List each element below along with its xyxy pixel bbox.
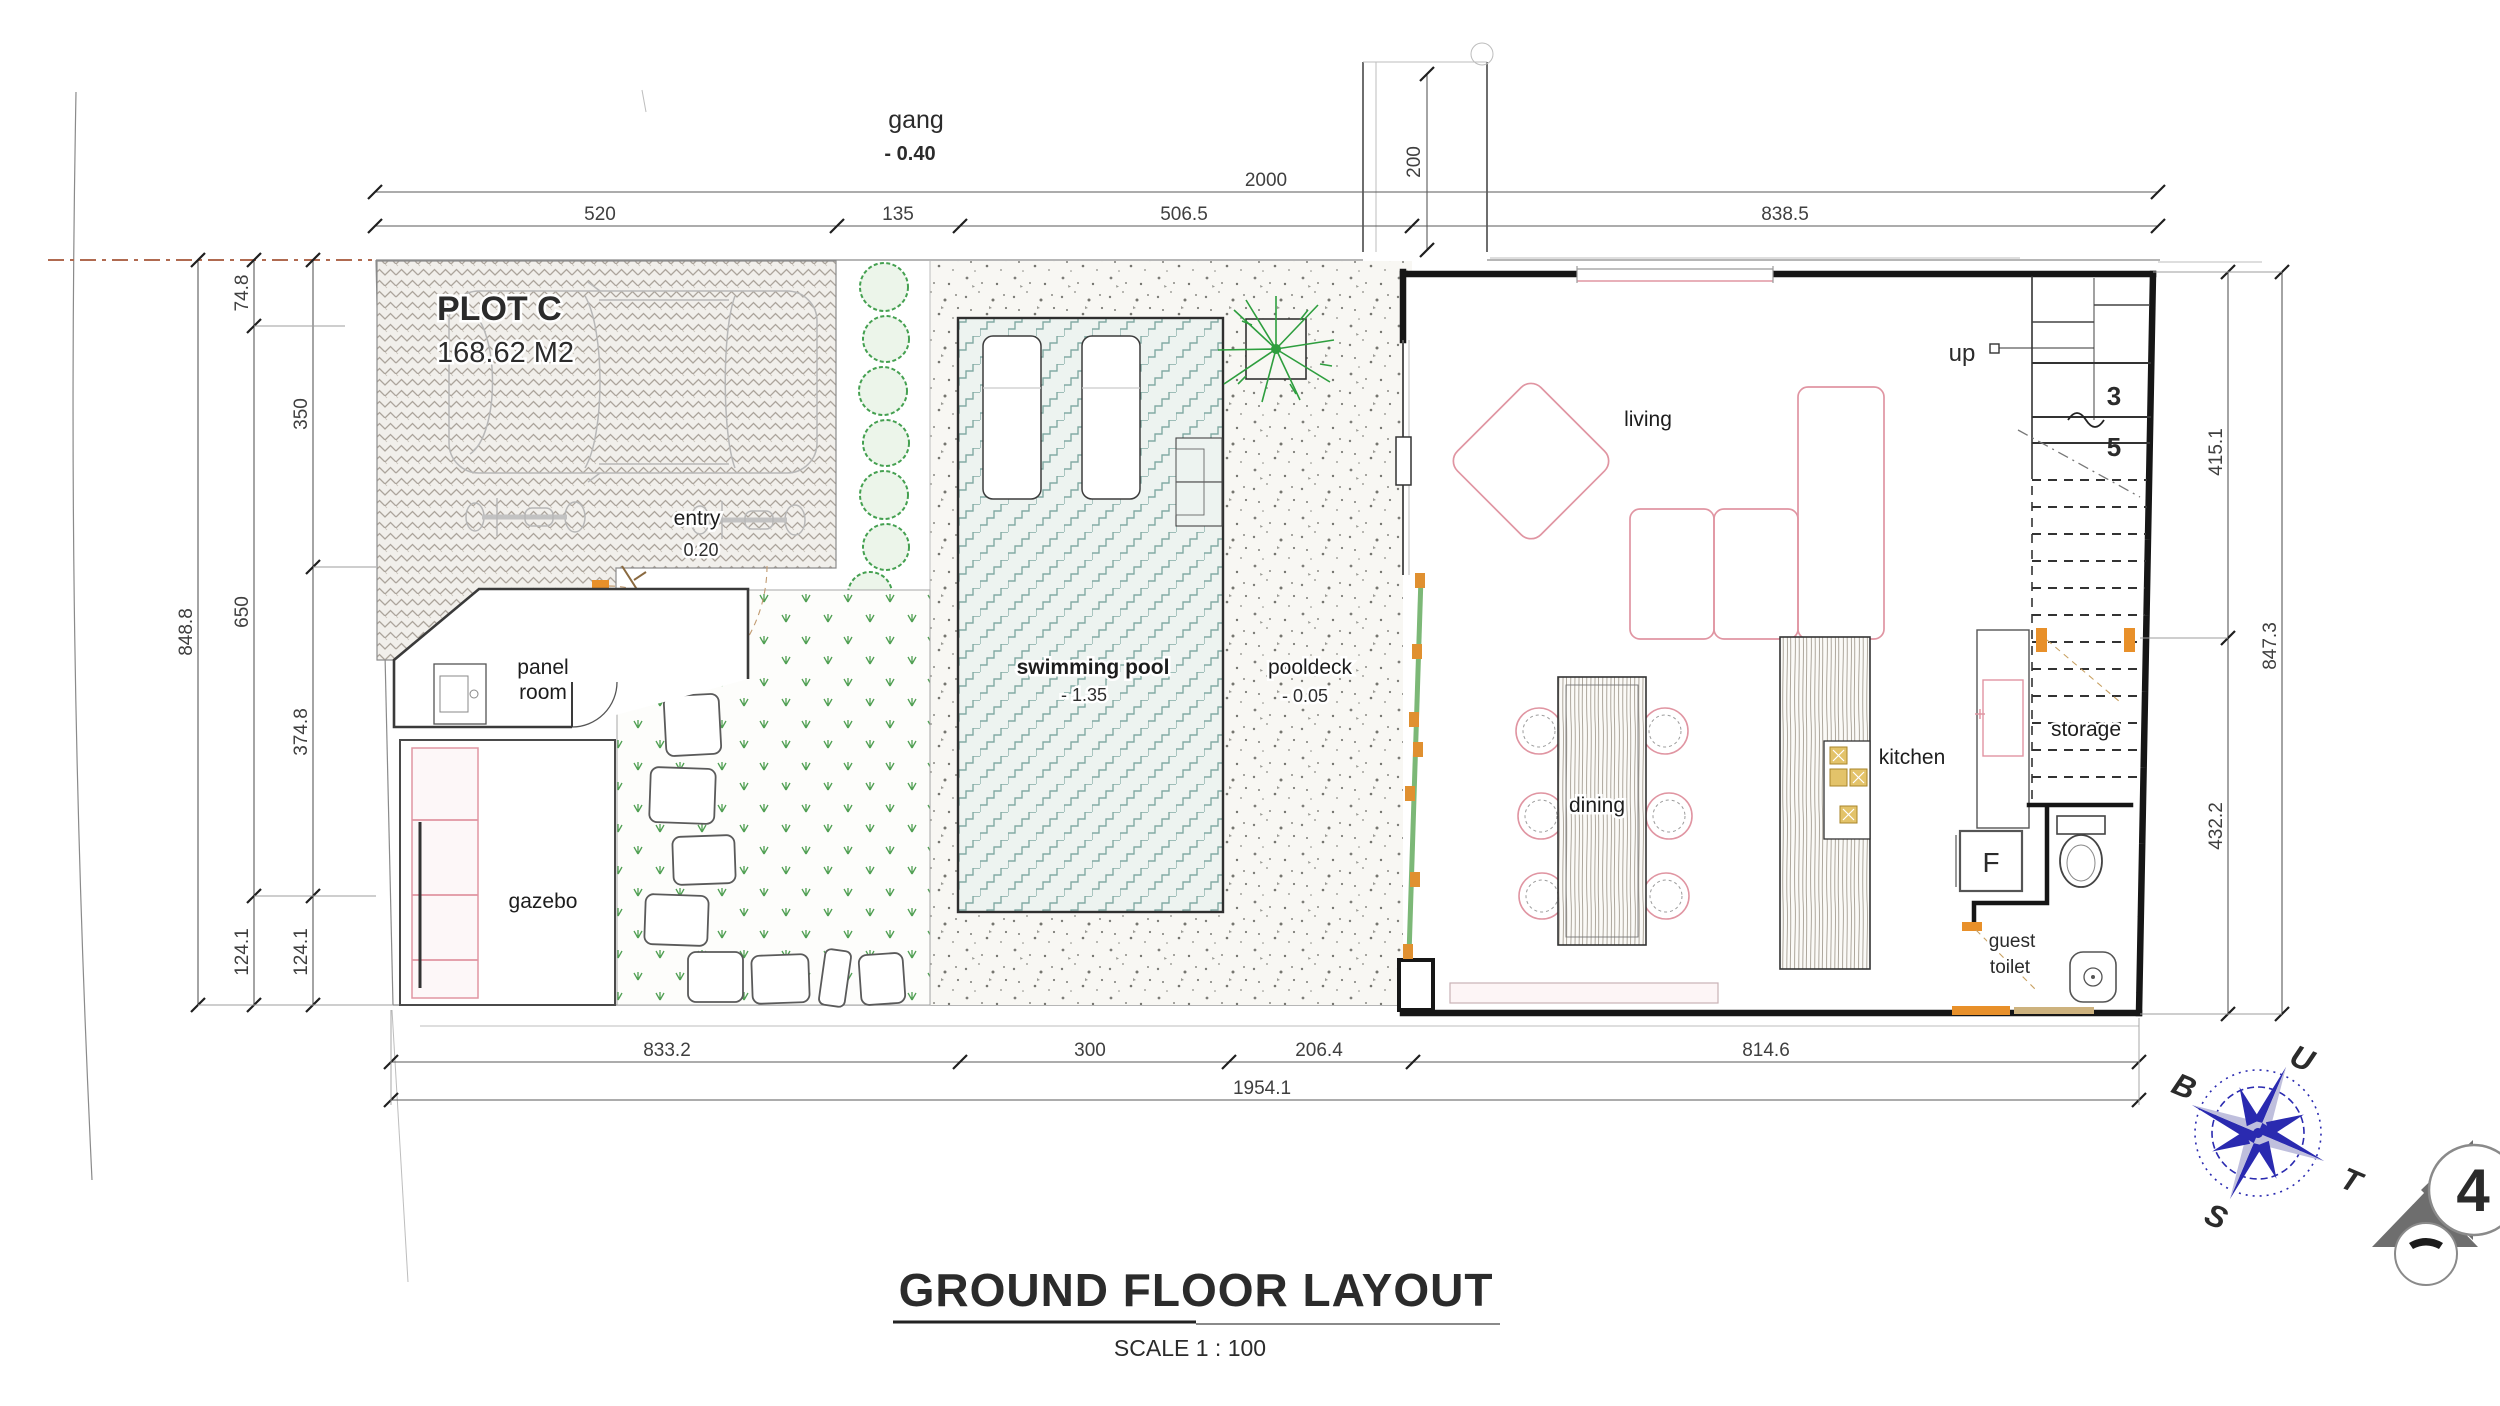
dim-top-4: 838.5	[1761, 204, 1809, 225]
dim-left-b2: 374.8	[291, 708, 312, 756]
living-label: living	[1624, 408, 1672, 431]
dim-bottom-4: 814.6	[1742, 1040, 1790, 1061]
door-sill	[1952, 1006, 2010, 1015]
compass-south: S	[2200, 1196, 2233, 1236]
dim-top-2: 135	[882, 204, 914, 225]
pool-steps-icon	[1176, 438, 1222, 526]
stairs-up-label: up	[1949, 340, 1976, 367]
dimension-right: 415.1 432.2 847.3	[2140, 265, 2289, 1021]
drawing-scale: SCALE 1 : 100	[1114, 1335, 1266, 1361]
compass-west: B	[2167, 1066, 2201, 1107]
alley-level: - 0.40	[884, 143, 935, 165]
pool-lounger-icon	[983, 336, 1041, 499]
compass-north: U	[2285, 1038, 2321, 1080]
dim-top-1: 520	[584, 204, 616, 225]
stove-icon	[1824, 741, 1870, 839]
panel-room-label-1: panel	[517, 656, 568, 679]
pooldeck-label: pooldeck	[1268, 656, 1353, 679]
tread-number-3: 3	[2107, 381, 2121, 411]
pooldeck-level: - 0.05	[1282, 686, 1328, 706]
title-block: GROUND FLOOR LAYOUT SCALE 1 : 100	[893, 1264, 1500, 1361]
dim-right-2: 432.2	[2206, 802, 2227, 850]
dimension-bottom: 833.2 300 206.4 814.6 1954.1	[384, 1010, 2146, 1107]
entry-label: entry	[674, 507, 721, 530]
alley-label: gang	[888, 106, 944, 134]
plot-name: PLOT C	[437, 290, 562, 328]
dim-left-a2: 650	[232, 596, 253, 628]
fridge-icon: F	[1956, 831, 2022, 891]
guest-toilet-label-2: toilet	[1990, 957, 2031, 978]
dim-bottom-2: 300	[1074, 1040, 1106, 1061]
tread-number-5: 5	[2107, 432, 2121, 462]
hedge-icon	[848, 263, 909, 616]
dining-area: dining	[1516, 677, 1692, 945]
swimming-pool: swimming pool - 1.35	[958, 318, 1223, 912]
dim-top-3: 506.5	[1160, 204, 1208, 225]
pool-level: - 1.35	[1061, 685, 1107, 705]
kitchen-label: kitchen	[1879, 746, 1946, 769]
dim-bottom-3: 206.4	[1295, 1040, 1343, 1061]
panel-room-label-2: room	[519, 681, 567, 704]
gazebo-bench-icon	[412, 748, 478, 998]
setback-bump: 200	[1363, 43, 1493, 257]
dim-left-a3: 124.1	[232, 928, 253, 976]
compass-east: T	[2336, 1161, 2370, 1202]
dimension-left: 848.8 74.8 650 124.1 350 374.8 124.1	[176, 253, 393, 1012]
dim-bottom-overall: 1954.1	[1233, 1078, 1291, 1099]
plot-area: 168.62 M2	[437, 337, 574, 369]
storage-label: storage	[2051, 718, 2121, 741]
dim-bottom-1: 833.2	[643, 1040, 691, 1061]
drawing-title: GROUND FLOOR LAYOUT	[899, 1264, 1494, 1316]
washbasin-icon	[2070, 952, 2116, 1002]
dim-left-a1: 74.8	[232, 275, 253, 312]
dining-label: dining	[1569, 794, 1625, 817]
dim-left-b1: 350	[291, 398, 312, 430]
toilet-icon	[2057, 816, 2105, 887]
section-marker-number: 4	[2456, 1157, 2490, 1224]
entry-level: 0.20	[683, 540, 718, 560]
gazebo: gazebo	[400, 740, 615, 1005]
door-sill	[2014, 1007, 2094, 1014]
floor-plan-canvas: 200 PLOT C 168.62 M2 ent	[0, 0, 2500, 1406]
dim-right-1: 415.1	[2206, 428, 2227, 476]
pool-lounger-icon	[1082, 336, 1140, 499]
dim-left-b3: 124.1	[291, 928, 312, 976]
dim-right-overall: 847.3	[2260, 622, 2281, 670]
planter-bench	[1450, 983, 1718, 1003]
pool-label: swimming pool	[1017, 656, 1170, 679]
dimension-top: 2000 520 135 506.5 838.5 gang - 0.40	[368, 106, 2165, 233]
dim-left-overall: 848.8	[176, 608, 197, 656]
window-icon	[1577, 266, 1773, 283]
section-marker: 4	[2372, 1140, 2500, 1285]
compass-rose-icon: U T S B	[2164, 1038, 2370, 1237]
guest-toilet-label-1: guest	[1989, 931, 2036, 952]
dim-top-overall: 2000	[1245, 170, 1287, 191]
dim-setback: 200	[1404, 146, 1425, 178]
gazebo-label: gazebo	[509, 890, 578, 913]
fridge-label: F	[1982, 847, 1999, 878]
